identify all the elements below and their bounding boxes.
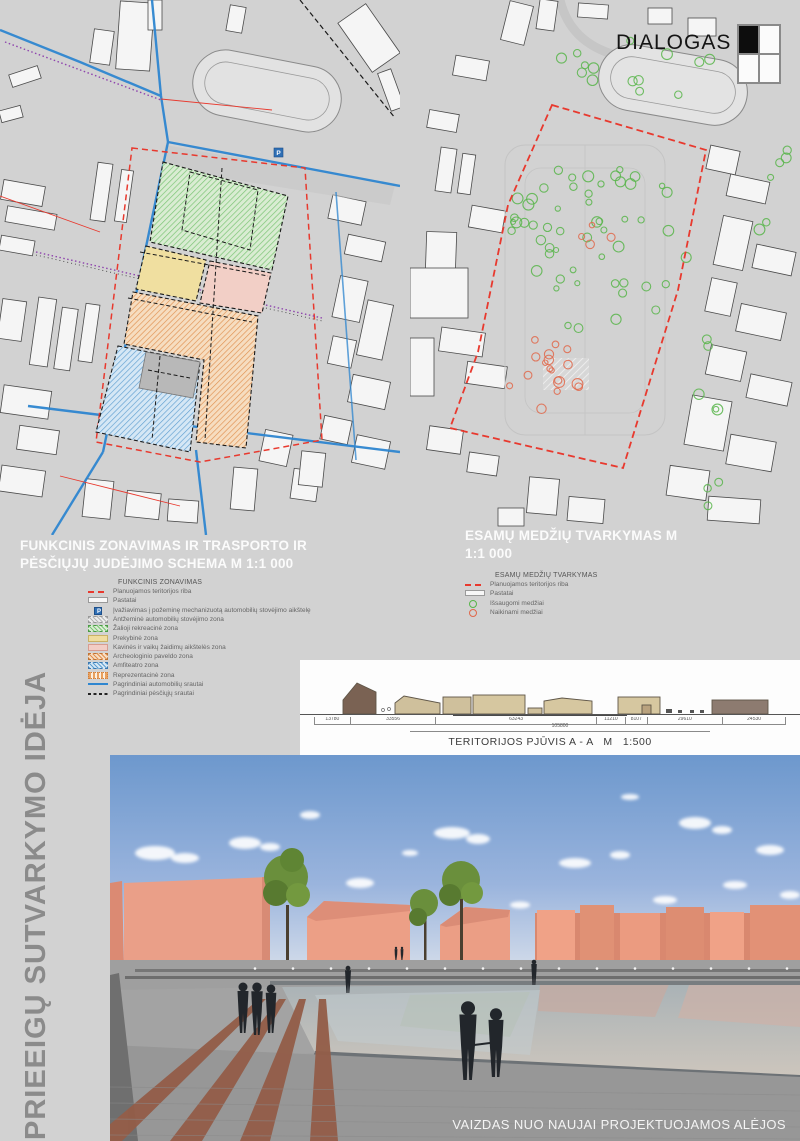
legend-label: Reprezentacinė zona <box>113 672 174 680</box>
legend-label: Pagrindiniai pėsčiųjų srautai <box>113 690 194 698</box>
legend-label: Naikinami medžiai <box>490 609 543 617</box>
hatch-blue-swatch-icon <box>88 662 108 669</box>
legend-item: Pastatai <box>88 597 323 605</box>
legend-item: Įvažiavimas į požeminę mechanizuotą auto… <box>88 607 323 615</box>
logo-cell <box>738 54 759 83</box>
section-total-dimension: 105800 <box>410 724 710 732</box>
map2-legend: ESAMŲ MEDŽIŲ TVARKYMAS Planuojamos terit… <box>465 572 700 619</box>
legend-label: Pastatai <box>113 597 137 605</box>
hatch-green-swatch-icon <box>88 625 108 632</box>
logo-cell <box>759 54 780 83</box>
legend-label: Antžeminė automobilių stovėjimo zona <box>113 616 224 624</box>
map2-legend-title: ESAMŲ MEDŽIŲ TVARKYMAS <box>495 572 700 579</box>
legend-label: Planuojamos teritorijos riba <box>490 581 568 589</box>
legend-label: Kavinės ir vaikų žaidimų aikštelės zona <box>113 644 226 652</box>
legend-item: Žalioji rekreacinė zona <box>88 625 323 633</box>
logo-cell-black <box>738 25 759 54</box>
hatch-orange-swatch-icon <box>88 653 108 660</box>
dot-orange-swatch-icon <box>88 672 108 679</box>
hatch-gray-swatch-icon <box>88 616 108 623</box>
legend-item: Amfiteatro zona <box>88 662 323 670</box>
solid-pink-swatch-icon <box>88 644 108 651</box>
render-caption: VAIZDAS NUO NAUJAI PROJEKTUOJAMOS ALĖJOS <box>452 1117 786 1132</box>
solid-yellow-swatch-icon <box>88 635 108 642</box>
map1-legend: FUNKCINIS ZONAVIMAS Planuojamos teritori… <box>88 579 323 699</box>
legend-label: Įvažiavimas į požeminę mechanizuotą auto… <box>113 607 311 615</box>
tree-green-swatch-icon <box>469 600 477 608</box>
legend-item: Pagrindiniai pėsčiųjų srautai <box>88 690 323 698</box>
svg-text:P: P <box>276 150 281 157</box>
legend-item: Pagrindiniai automobilių srautai <box>88 681 323 689</box>
dialogas-logo-icon <box>737 24 781 84</box>
dialogas-logo-text: DIALOGAS <box>616 31 731 55</box>
legend-label: Žalioji rekreacinė zona <box>113 625 178 633</box>
map1-legend-title: FUNKCINIS ZONAVIMAS <box>118 579 323 586</box>
building-swatch-icon <box>88 597 108 603</box>
legend-item: Naikinami medžiai <box>465 609 700 617</box>
legend-item: Kavinės ir vaikų žaidimų aikštelės zona <box>88 644 323 652</box>
map1-legend-items: Planuojamos teritorijos ribaPastataiĮvaž… <box>88 588 323 698</box>
territory-section-drawing <box>300 660 800 716</box>
legend-label: Amfiteatro zona <box>113 662 159 670</box>
legend-label: Pagrindiniai automobilių srautai <box>113 681 203 689</box>
building-swatch-icon <box>465 590 485 596</box>
red-dash-swatch-icon <box>465 584 485 586</box>
plaza <box>110 960 800 1141</box>
legend-item: Prekybinė zona <box>88 635 323 643</box>
board-vertical-title: PRIEEIGŲ SUTVARKYMO IDĖJA <box>20 692 53 1140</box>
red-dash-swatch-icon <box>88 591 108 593</box>
dimension-segment: 24530 <box>722 717 786 725</box>
map1-heading: FUNKCINIS ZONAVIMAS IR TRASPORTO IR PĖSČ… <box>20 537 342 572</box>
section-caption: TERITORIJOS PJŪVIS A - A M 1:500 <box>300 736 800 748</box>
dash-black-swatch-icon <box>88 693 108 695</box>
legend-label: Pastatai <box>490 590 514 598</box>
map2-legend-items: Planuojamos teritorijos ribaPastataiIšsa… <box>465 581 700 617</box>
underground-parking-entrance-icon: P <box>274 148 283 157</box>
legend-item: Pastatai <box>465 590 700 598</box>
map2-heading: ESAMŲ MEDŽIŲ TVARKYMAS M 1:1 000 <box>465 527 695 562</box>
dimension-segment: 13780 <box>314 717 350 725</box>
legend-item: Archeologinio paveldo zona <box>88 653 323 661</box>
zoning-transport-map: P <box>0 0 400 535</box>
legend-label: Planuojamos teritorijos riba <box>113 588 191 596</box>
legend-label: Išsaugomi medžiai <box>490 600 544 608</box>
legend-item: Reprezentacinė zona <box>88 672 323 680</box>
legend-label: Archeologinio paveldo zona <box>113 653 193 661</box>
legend-item: Išsaugomi medžiai <box>465 600 700 608</box>
logo-cell <box>759 25 780 54</box>
legend-item: Planuojamos teritorijos riba <box>465 581 700 589</box>
legend-item: Planuojamos teritorijos riba <box>88 588 323 596</box>
render-image <box>110 755 800 1141</box>
legend-item: Antžeminė automobilių stovėjimo zona <box>88 616 323 624</box>
tree-red-swatch-icon <box>469 609 477 617</box>
legend-label: Prekybinė zona <box>113 635 158 643</box>
presentation-board: P DIALOGAS FUNKCINIS ZONAVIMAS IR TRASPO… <box>0 0 800 1141</box>
perspective-render: VAIZDAS NUO NAUJAI PROJEKTUOJAMOS ALĖJOS <box>110 755 800 1141</box>
line-blue-swatch-icon <box>88 683 108 685</box>
section-strip: 1378033556632431121081072961024530 10580… <box>300 660 800 755</box>
entrance-swatch-icon <box>94 607 102 615</box>
